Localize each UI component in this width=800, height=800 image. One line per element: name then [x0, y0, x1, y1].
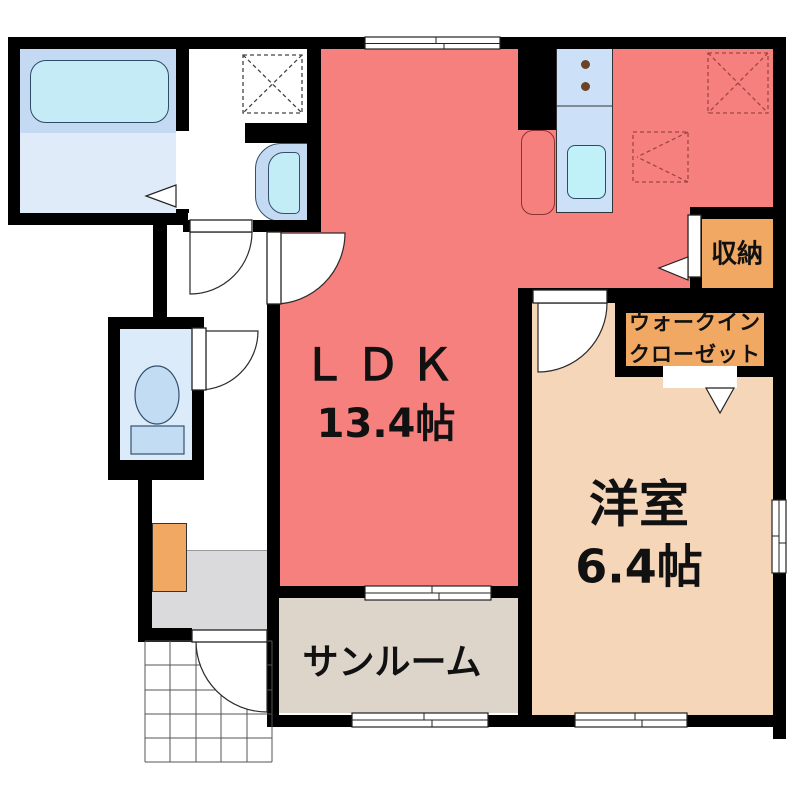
wic-label-line1: ウォークイン: [629, 311, 761, 335]
window-sunroom-top: [365, 586, 491, 600]
door-leaf-washroom: [190, 220, 252, 232]
ldk-area-label: 13.4帖: [317, 402, 456, 446]
door-leaf-ldk: [267, 232, 281, 304]
window-western-right: [772, 500, 786, 573]
storage-label: 収納: [711, 241, 763, 270]
window-sunroom-bottom: [352, 713, 488, 727]
refrigerator-space-symbol: [708, 53, 768, 113]
door-arc-entry: [196, 641, 267, 712]
door-leaf-storage: [688, 215, 701, 277]
sunroom-label: サンルーム: [303, 643, 482, 683]
door-leaf-entry: [192, 630, 267, 642]
door-arc-western: [538, 303, 607, 372]
washer-pan-symbol: [243, 55, 302, 113]
door-leaf-toilet: [192, 328, 206, 390]
door-leaf-western: [533, 290, 607, 303]
wic-label-line2: クローゼット: [629, 342, 761, 366]
storage-door-triangle: [659, 257, 688, 280]
bath-door-gap: [176, 131, 189, 209]
window-western-bottom: [575, 713, 687, 727]
door-arc-washroom: [190, 232, 252, 294]
bath-door-triangle: [146, 185, 176, 207]
wic-label: ウォークイン クローゼット: [629, 308, 761, 371]
western-room-label: 洋室: [589, 478, 689, 533]
western-area-label: 6.4帖: [575, 542, 703, 593]
wic-door-triangle: [706, 388, 734, 413]
toilet-tank: [131, 426, 184, 454]
ldk-room-label: ＬＤＫ: [302, 342, 464, 390]
door-arc-toilet: [199, 331, 258, 390]
window-ldk-top: [365, 37, 500, 49]
toilet-bowl: [135, 366, 179, 424]
door-arc-ldk: [274, 233, 345, 304]
cupboard-space-symbol: [633, 132, 688, 182]
floor-plan: ＬＤＫ 13.4帖 洋室 6.4帖 サンルーム 収納 ウォークイン クローゼット: [0, 0, 800, 800]
